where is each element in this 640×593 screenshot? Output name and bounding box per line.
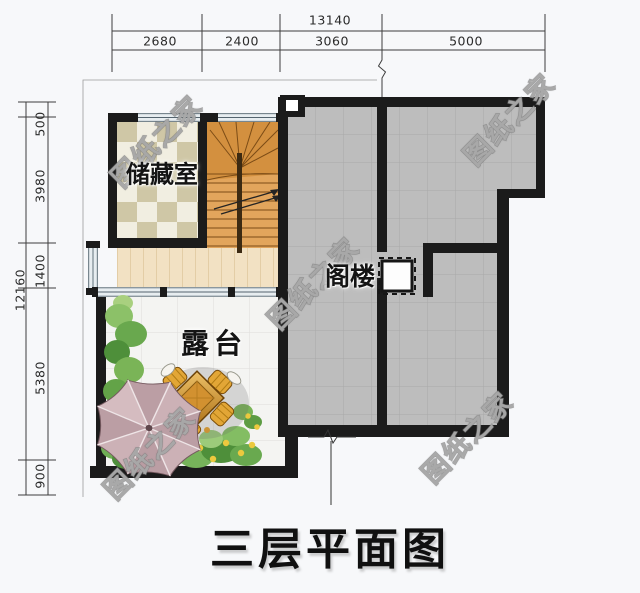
dim-top-seg-1: 2680	[143, 34, 177, 49]
room-label-attic: 阁楼	[325, 257, 375, 293]
drawing-title: 三层平面图	[210, 513, 450, 577]
dim-top-seg-4: 5000	[449, 34, 483, 49]
structural-column	[379, 258, 415, 294]
dim-top-seg-3: 3060	[315, 34, 349, 49]
dim-left-seg-4: 5380	[33, 361, 48, 395]
dim-top-total: 13140	[309, 13, 351, 28]
dim-left-seg-3: 1400	[33, 254, 48, 288]
dim-left-seg-2: 3980	[33, 169, 48, 203]
floor-plan-page: 图纸之家 图纸之家 图纸之家 图纸之家 图纸之家 储藏室 阁楼 露台 13140…	[0, 0, 640, 593]
room-label-terrace: 露台	[181, 322, 247, 362]
chimney-core	[286, 100, 298, 111]
dim-left-total: 12160	[13, 269, 28, 311]
break-line-bottom	[308, 430, 356, 505]
room-label-storage: 储藏室	[126, 155, 198, 190]
dim-top-seg-2: 2400	[225, 34, 259, 49]
dim-left-seg-1: 500	[33, 111, 48, 136]
dim-left-seg-5: 900	[33, 463, 48, 488]
